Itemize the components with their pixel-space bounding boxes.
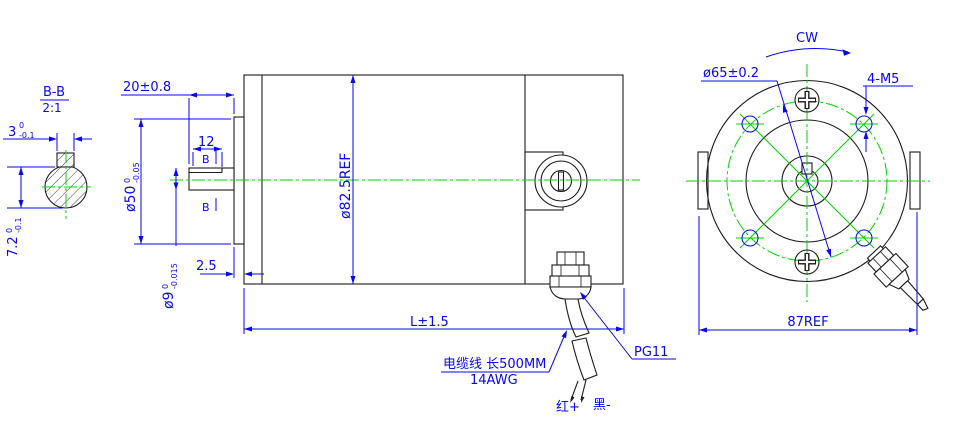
- svg-text:ø82.5REF: ø82.5REF: [338, 153, 354, 219]
- detail-title: B-B: [43, 85, 65, 100]
- shaft-diameter-dimension: ø9 0 -0.015: [161, 168, 179, 309]
- gland-callout: PG11: [580, 292, 676, 360]
- svg-text:0: 0: [123, 178, 132, 183]
- svg-text:4-M5: 4-M5: [867, 72, 899, 87]
- svg-text:2.5: 2.5: [196, 259, 217, 274]
- svg-text:L±1.5: L±1.5: [410, 315, 449, 330]
- motor-drawing-canvas: B-B 2:1 3 0 -0.1 7.2 0 -0.1: [0, 0, 973, 432]
- svg-text:CW: CW: [796, 31, 818, 46]
- screw-bottom: [795, 250, 819, 274]
- shaft-extension-dimension: 20±0.8: [121, 80, 234, 164]
- svg-text:ø9: ø9: [161, 292, 177, 309]
- svg-text:0: 0: [5, 228, 14, 233]
- detail-scale: 2:1: [42, 101, 61, 115]
- detail-view-bb: B-B 2:1 3 0 -0.1 7.2 0 -0.1: [3, 85, 92, 257]
- svg-text:3: 3: [8, 125, 16, 140]
- bolt-circle-dimension: ø65±0.2: [701, 66, 831, 257]
- svg-text:14AWG: 14AWG: [470, 373, 518, 388]
- side-view: 20±0.8 12 B B: [121, 75, 676, 415]
- cable-gland-front: [863, 242, 938, 320]
- svg-text:20±0.8: 20±0.8: [123, 80, 171, 95]
- svg-text:电缆线 长500MM: 电缆线 长500MM: [443, 356, 546, 372]
- svg-text:7.2: 7.2: [6, 236, 21, 257]
- rotation-direction: CW: [766, 31, 851, 57]
- wire-negative-label: 黑-: [593, 398, 611, 413]
- svg-text:-0.1: -0.1: [14, 217, 23, 233]
- section-letter-bottom: B: [202, 201, 210, 214]
- svg-text:ø65±0.2: ø65±0.2: [703, 66, 759, 81]
- svg-text:ø50: ø50: [123, 186, 139, 212]
- detail-width-dimension: 3 0 -0.1: [3, 121, 92, 151]
- section-letter-top: B: [202, 153, 210, 166]
- svg-text:87REF: 87REF: [787, 315, 828, 330]
- brush-cap: [525, 152, 587, 210]
- svg-text:PG11: PG11: [634, 345, 668, 360]
- output-shaft: [189, 168, 234, 190]
- svg-text:-0.05: -0.05: [132, 162, 141, 183]
- front-view: CW ø65±0.2 4-M5 87REF: [686, 31, 938, 335]
- mount-holes-dimension: 4-M5: [863, 72, 913, 152]
- svg-text:0: 0: [19, 121, 24, 130]
- screw-top: [795, 88, 819, 112]
- cable: [565, 299, 597, 403]
- engineering-drawing-motor: B-B 2:1 3 0 -0.1 7.2 0 -0.1: [0, 0, 973, 432]
- svg-text:0: 0: [161, 284, 170, 289]
- svg-text:-0.015: -0.015: [170, 263, 179, 289]
- wire-positive-label: 红+: [556, 399, 580, 415]
- cable-callout: 电缆线 长500MM 14AWG: [441, 330, 567, 388]
